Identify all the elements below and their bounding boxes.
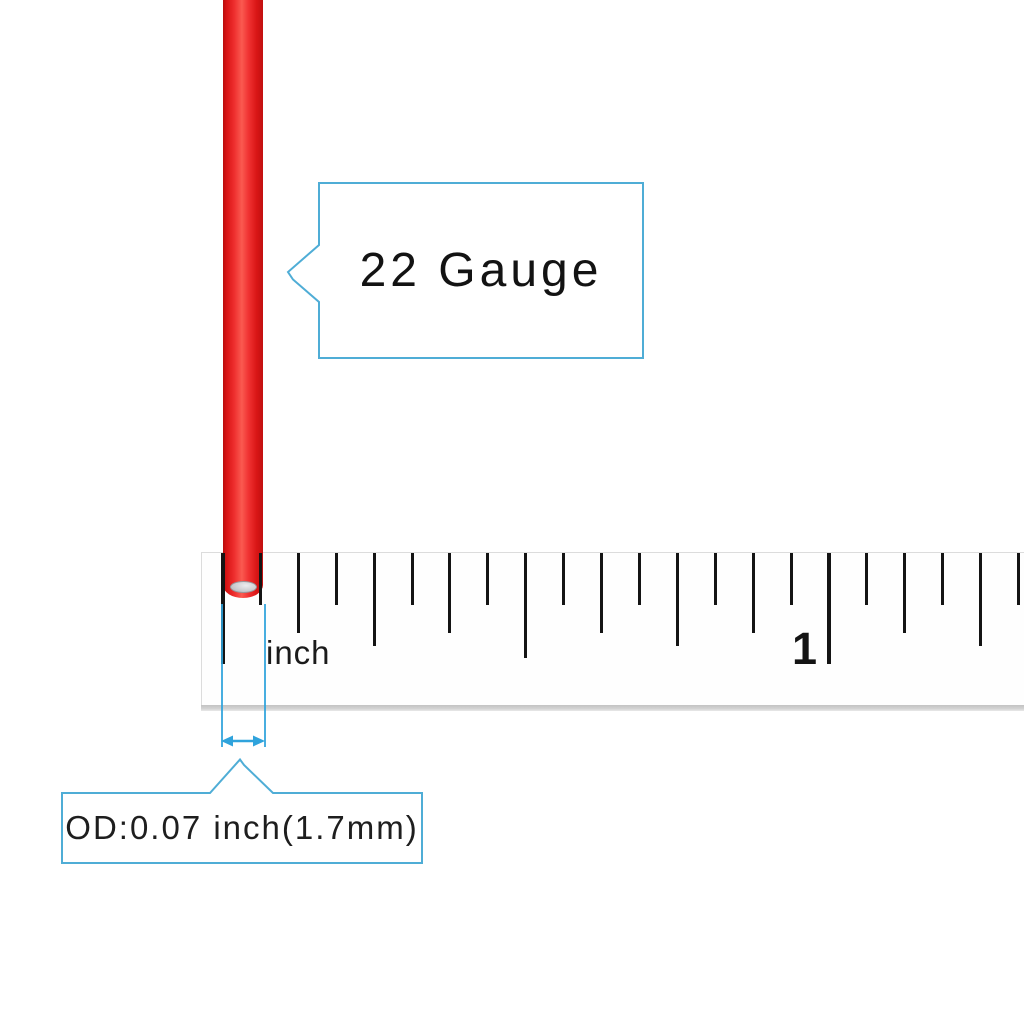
ruler-tick xyxy=(373,553,376,646)
product-measurement-diagram: inch 1 22 Gauge OD:0.07 inch(1.7mm) xyxy=(0,0,1024,1024)
ruler-tick xyxy=(486,553,489,605)
ruler-tick xyxy=(752,553,755,633)
ruler-tick xyxy=(1017,553,1020,605)
od-callout-text: OD:0.07 inch(1.7mm) xyxy=(64,795,420,861)
ruler-tick xyxy=(979,553,982,646)
ruler-tick xyxy=(676,553,679,646)
ruler-tick xyxy=(941,553,944,605)
ruler-tick xyxy=(903,553,906,633)
ruler-tick xyxy=(297,553,300,633)
ruler-tick xyxy=(335,553,338,605)
ruler-tick xyxy=(865,553,868,605)
ruler-tick xyxy=(714,553,717,605)
ruler-tick xyxy=(600,553,603,633)
ruler-unit-label: inch xyxy=(266,634,331,672)
ruler-tick xyxy=(411,553,414,605)
od-guide-line-right xyxy=(264,604,266,747)
wire-core-cross-section xyxy=(230,581,257,593)
ruler-tick xyxy=(638,553,641,605)
ruler-tick xyxy=(827,553,831,664)
red-wire xyxy=(223,0,263,598)
ruler xyxy=(201,552,1024,706)
ruler-tick xyxy=(524,553,527,658)
dimension-arrow-icon xyxy=(221,736,265,747)
ruler-1-inch-label: 1 xyxy=(777,623,817,675)
ruler-bottom-edge xyxy=(201,705,1024,711)
annotation-overlay xyxy=(0,0,1024,1024)
ruler-tick xyxy=(259,553,262,605)
gauge-callout-text: 22 Gauge xyxy=(321,185,641,356)
ruler-tick xyxy=(790,553,793,605)
ruler-tick xyxy=(562,553,565,605)
od-guide-line-left xyxy=(221,604,223,747)
ruler-tick xyxy=(448,553,451,633)
